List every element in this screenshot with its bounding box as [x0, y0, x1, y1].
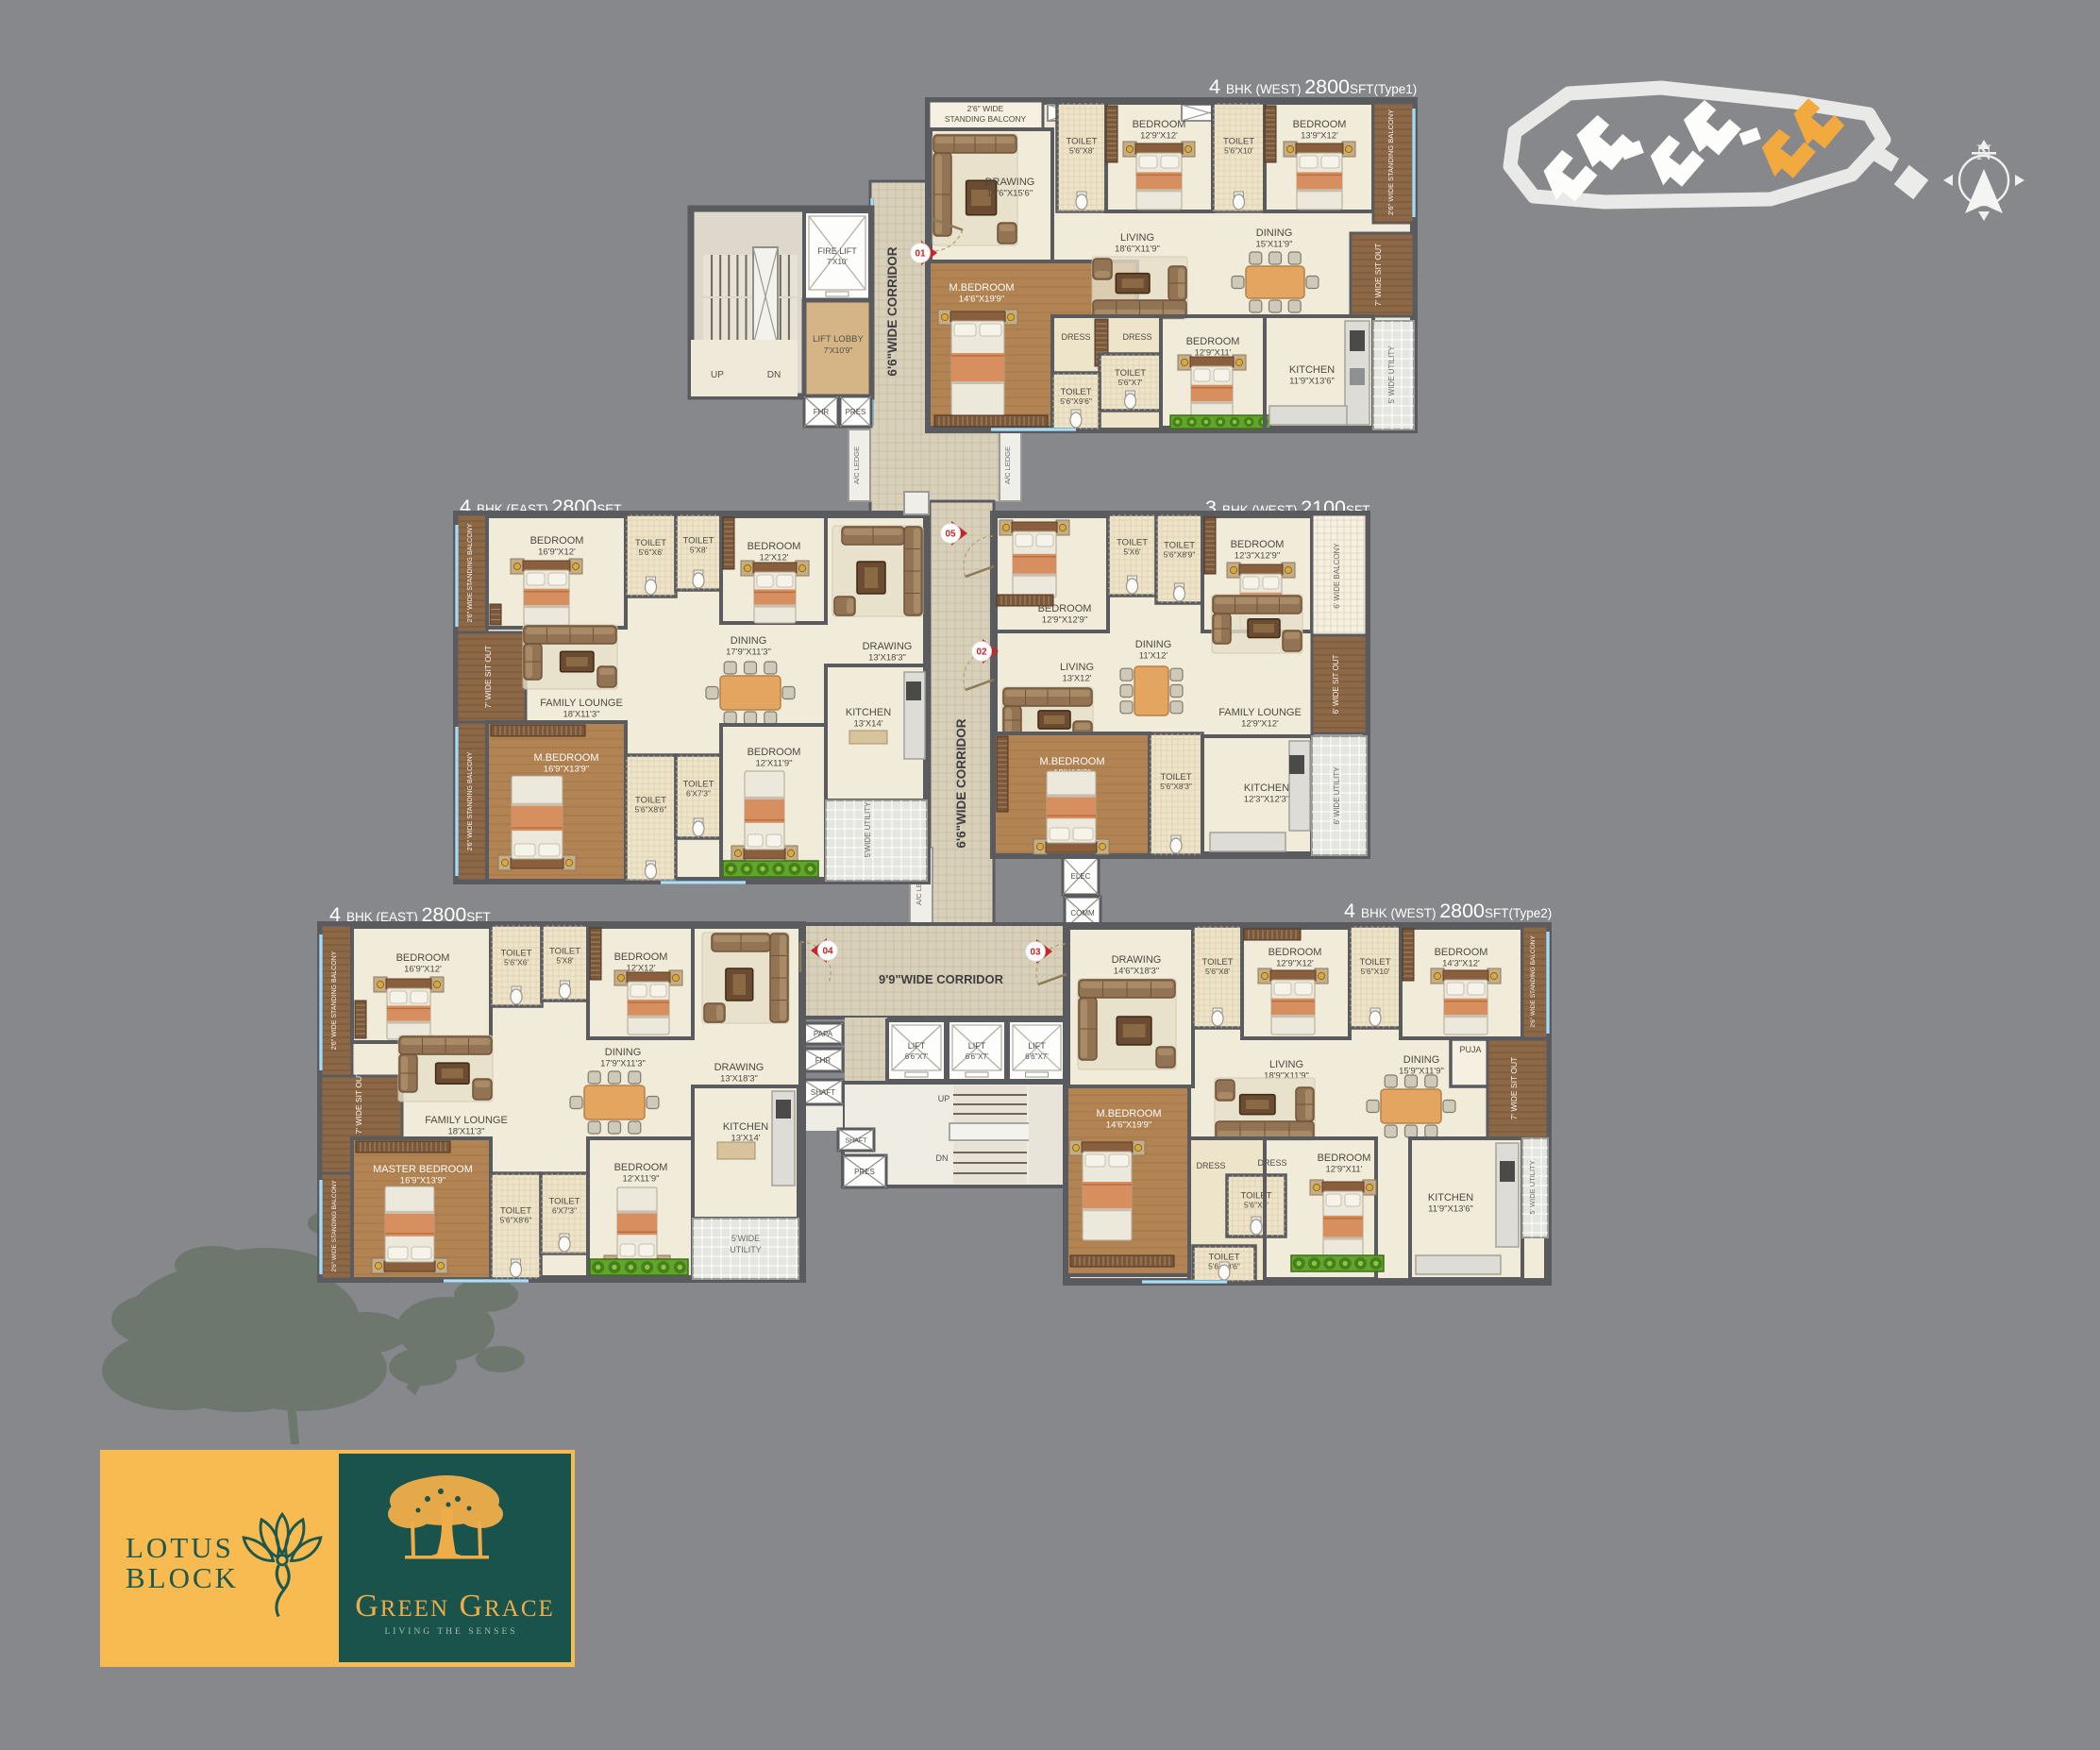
- svg-text:12'9"X12': 12'9"X12': [1276, 959, 1314, 969]
- svg-text:5' WIDE UTILITY: 5' WIDE UTILITY: [1528, 1160, 1537, 1214]
- svg-text:M.BEDROOM: M.BEDROOM: [949, 282, 1014, 294]
- svg-text:7' WIDE SIT OUT: 7' WIDE SIT OUT: [1373, 244, 1383, 307]
- svg-text:6'6"X7': 6'6"X7': [1025, 1052, 1049, 1061]
- svg-text:12'X11'9": 12'X11'9": [755, 759, 792, 769]
- svg-text:11'9"X13'6": 11'9"X13'6": [1428, 1204, 1473, 1215]
- svg-text:14'6"X15'6": 14'6"X15'6": [987, 189, 1033, 199]
- svg-text:18'X11'3": 18'X11'3": [447, 1127, 484, 1137]
- svg-text:STANDING BALCONY: STANDING BALCONY: [945, 114, 1027, 124]
- svg-text:UP: UP: [711, 370, 724, 380]
- svg-text:BEDROOM: BEDROOM: [530, 535, 584, 547]
- svg-text:KITCHEN: KITCHEN: [1244, 782, 1289, 794]
- svg-text:LIVING: LIVING: [1060, 662, 1094, 673]
- svg-text:18'X11'3": 18'X11'3": [563, 710, 599, 720]
- svg-text:13'X12': 13'X12': [1062, 674, 1091, 684]
- svg-text:6'6"X7': 6'6"X7': [905, 1052, 929, 1061]
- svg-text:BEDROOM: BEDROOM: [1268, 947, 1322, 958]
- svg-text:6'6"X7': 6'6"X7': [966, 1052, 989, 1061]
- svg-text:5'6"X10': 5'6"X10': [1224, 146, 1253, 156]
- svg-text:PRES: PRES: [854, 1168, 875, 1176]
- svg-text:2'6" WIDE STANDING BALCONY: 2'6" WIDE STANDING BALCONY: [467, 751, 474, 850]
- svg-text:COMM: COMM: [1070, 909, 1095, 917]
- svg-text:7'X10'9": 7'X10'9": [824, 345, 853, 355]
- svg-text:5'6"X8'6": 5'6"X8'6": [635, 805, 667, 815]
- svg-text:DINING: DINING: [1135, 639, 1172, 650]
- svg-text:17'9"X11'3": 17'9"X11'3": [726, 648, 771, 658]
- svg-text:LIVING THE SENSES: LIVING THE SENSES: [384, 1627, 517, 1637]
- svg-text:5'6"X6': 5'6"X6': [504, 958, 529, 968]
- svg-text:2'6" WIDE: 2'6" WIDE: [967, 104, 1004, 113]
- svg-text:7' WIDE SIT OUT: 7' WIDE SIT OUT: [1509, 1057, 1519, 1120]
- svg-text:12'X11'9": 12'X11'9": [622, 1174, 659, 1185]
- svg-text:DRAWING: DRAWING: [985, 177, 1035, 188]
- svg-text:5'6"X8'3": 5'6"X8'3": [1160, 782, 1192, 791]
- svg-text:6' WIDE SIT OUT: 6' WIDE SIT OUT: [1332, 655, 1340, 715]
- svg-text:17'9"X11'3": 17'9"X11'3": [600, 1059, 646, 1069]
- svg-text:13'9"X12': 13'9"X12': [1301, 131, 1338, 142]
- svg-text:BEDROOM: BEDROOM: [1293, 119, 1347, 130]
- svg-text:LIFT LOBBY: LIFT LOBBY: [813, 334, 864, 345]
- svg-text:6'X7'3": 6'X7'3": [552, 1205, 577, 1215]
- svg-text:MASTER BEDROOM: MASTER BEDROOM: [373, 1164, 473, 1175]
- svg-text:01: 01: [915, 249, 926, 260]
- svg-text:6' WIDE UTILITY: 6' WIDE UTILITY: [1333, 766, 1341, 825]
- svg-text:DRESS: DRESS: [1257, 1158, 1286, 1168]
- svg-text:FHR: FHR: [815, 1056, 832, 1065]
- svg-text:UTILITY: UTILITY: [730, 1245, 762, 1254]
- svg-text:11'X12': 11'X12': [1139, 651, 1168, 662]
- svg-text:KITCHEN: KITCHEN: [723, 1121, 768, 1133]
- svg-text:BEDROOM: BEDROOM: [1231, 539, 1285, 550]
- svg-text:PAPA: PAPA: [814, 1030, 833, 1038]
- svg-text:2'6" WIDE STANDING BALCONY: 2'6" WIDE STANDING BALCONY: [331, 951, 338, 1050]
- svg-text:5'WIDE: 5'WIDE: [731, 1234, 760, 1243]
- svg-text:KITCHEN: KITCHEN: [1289, 364, 1335, 376]
- svg-text:14'6"X19'9": 14'6"X19'9": [959, 294, 1004, 305]
- svg-text:16'9"X13'9": 16'9"X13'9": [400, 1176, 445, 1186]
- svg-text:PRES: PRES: [846, 408, 866, 416]
- svg-text:N: N: [1976, 141, 1992, 164]
- svg-text:DINING: DINING: [1403, 1054, 1440, 1066]
- svg-text:A/C LEDGE: A/C LEDGE: [1003, 446, 1012, 484]
- svg-text:LOTUS: LOTUS: [126, 1531, 234, 1564]
- svg-text:05: 05: [945, 530, 956, 540]
- svg-text:2'6" WIDE STANDING BALCONY: 2'6" WIDE STANDING BALCONY: [331, 1180, 338, 1272]
- svg-text:LIFT: LIFT: [1028, 1041, 1046, 1051]
- svg-text:LIVING: LIVING: [1269, 1059, 1303, 1070]
- svg-text:FAMILY LOUNGE: FAMILY LOUNGE: [540, 698, 623, 709]
- svg-text:9'9"WIDE CORRIDOR: 9'9"WIDE CORRIDOR: [879, 972, 1004, 986]
- svg-text:7' WIDE SIT OUT: 7' WIDE SIT OUT: [354, 1071, 363, 1135]
- svg-text:BEDROOM: BEDROOM: [1186, 336, 1240, 347]
- svg-text:13'X18'3": 13'X18'3": [868, 653, 906, 664]
- svg-text:2'6" WIDE STANDING BALCONY: 2'6" WIDE STANDING BALCONY: [1386, 109, 1395, 215]
- svg-text:7'X10': 7'X10': [827, 258, 848, 266]
- svg-text:2'6" WIDE STANDING BALCONY: 2'6" WIDE STANDING BALCONY: [1530, 935, 1537, 1028]
- svg-text:DRESS: DRESS: [1196, 1161, 1225, 1170]
- svg-text:KITCHEN: KITCHEN: [846, 707, 891, 718]
- svg-text:5'6"X8'6": 5'6"X8'6": [500, 1216, 532, 1225]
- svg-text:5'6"X10': 5'6"X10': [1361, 967, 1390, 976]
- svg-text:2'6" WIDE STANDING BALCONY: 2'6" WIDE STANDING BALCONY: [467, 523, 474, 622]
- svg-text:BEDROOM: BEDROOM: [1133, 119, 1186, 130]
- svg-text:6'6"WIDE CORRIDOR: 6'6"WIDE CORRIDOR: [885, 246, 899, 376]
- svg-text:FIRE LIFT: FIRE LIFT: [817, 246, 857, 256]
- svg-text:BEDROOM: BEDROOM: [748, 541, 801, 552]
- svg-text:15'X11'9": 15'X11'9": [1255, 240, 1292, 250]
- svg-text:DRESS: DRESS: [1122, 332, 1151, 342]
- svg-text:14'6"X19'9": 14'6"X19'9": [1106, 1120, 1151, 1131]
- svg-text:PUJA: PUJA: [1459, 1045, 1481, 1054]
- svg-text:DN: DN: [767, 370, 781, 380]
- svg-text:5'X6': 5'X6': [1123, 547, 1141, 557]
- svg-text:13'X18'3": 13'X18'3": [720, 1074, 758, 1085]
- svg-text:5'WIDE UTILITY: 5'WIDE UTILITY: [864, 801, 872, 858]
- svg-text:7' WIDE SIT OUT: 7' WIDE SIT OUT: [483, 646, 493, 709]
- svg-text:M.BEDROOM: M.BEDROOM: [533, 752, 598, 764]
- svg-text:A/C LEDGE: A/C LEDGE: [852, 446, 861, 484]
- svg-text:5'6"X8'9": 5'6"X8'9": [1164, 550, 1196, 560]
- svg-text:LIFT: LIFT: [908, 1041, 926, 1051]
- svg-text:FAMILY LOUNGE: FAMILY LOUNGE: [425, 1115, 508, 1126]
- svg-text:DRAWING: DRAWING: [1112, 954, 1162, 966]
- svg-text:12'9"X11': 12'9"X11': [1325, 1165, 1362, 1175]
- svg-text:DINING: DINING: [605, 1047, 642, 1058]
- svg-text:18'6"X11'9": 18'6"X11'9": [1115, 244, 1160, 255]
- svg-text:FHR: FHR: [814, 408, 830, 416]
- svg-text:11'9"X13'6": 11'9"X13'6": [1289, 377, 1335, 387]
- svg-text:BEDROOM: BEDROOM: [1318, 1153, 1371, 1164]
- svg-text:BLOCK: BLOCK: [126, 1561, 239, 1594]
- svg-text:12'X12': 12'X12': [759, 553, 788, 564]
- svg-text:UP: UP: [938, 1094, 950, 1103]
- svg-text:SHAFT: SHAFT: [846, 1138, 868, 1145]
- svg-text:12'3"X12'9": 12'3"X12'9": [1235, 551, 1280, 562]
- svg-text:6'6"WIDE CORRIDOR: 6'6"WIDE CORRIDOR: [954, 718, 968, 848]
- svg-text:14'6"X18'3": 14'6"X18'3": [1114, 967, 1159, 977]
- svg-text:M.BEDROOM: M.BEDROOM: [1096, 1108, 1161, 1119]
- svg-text:12'9"X12'9": 12'9"X12'9": [1042, 615, 1087, 626]
- svg-text:16'9"X12': 16'9"X12': [404, 965, 442, 975]
- svg-text:5'6"X8': 5'6"X8': [1069, 146, 1094, 156]
- svg-text:6' WIDE BALCONY: 6' WIDE BALCONY: [1333, 543, 1341, 609]
- svg-text:BEDROOM: BEDROOM: [614, 1162, 668, 1173]
- svg-text:5' WIDE UTILITY: 5' WIDE UTILITY: [1387, 345, 1396, 404]
- svg-text:04: 04: [822, 947, 833, 957]
- svg-text:DRAWING: DRAWING: [714, 1062, 764, 1073]
- svg-text:BEDROOM: BEDROOM: [396, 952, 450, 964]
- svg-text:DINING: DINING: [731, 635, 767, 647]
- svg-text:5'6"X6': 5'6"X6': [638, 547, 663, 557]
- svg-text:12'9"X12': 12'9"X12': [1241, 719, 1279, 730]
- svg-text:M.BEDROOM: M.BEDROOM: [1039, 756, 1104, 767]
- svg-text:LIFT: LIFT: [968, 1041, 986, 1051]
- svg-text:6'X7'3": 6'X7'3": [686, 788, 711, 798]
- svg-text:LIVING: LIVING: [1120, 232, 1154, 244]
- svg-text:12'9"X12': 12'9"X12': [1140, 131, 1178, 142]
- svg-text:DRAWING: DRAWING: [863, 641, 913, 652]
- svg-text:KITCHEN: KITCHEN: [1428, 1192, 1473, 1203]
- svg-text:03: 03: [1030, 948, 1041, 958]
- svg-text:02: 02: [976, 648, 987, 658]
- svg-text:FAMILY LOUNGE: FAMILY LOUNGE: [1218, 707, 1302, 718]
- svg-text:DRESS: DRESS: [1061, 332, 1090, 342]
- svg-text:DN: DN: [936, 1153, 949, 1163]
- svg-text:15'9"X11'9": 15'9"X11'9": [1399, 1067, 1444, 1077]
- svg-text:BEDROOM: BEDROOM: [1435, 947, 1488, 958]
- svg-text:16'9"X12': 16'9"X12': [538, 547, 576, 558]
- svg-text:13'X14': 13'X14': [853, 719, 882, 730]
- svg-text:5'X8': 5'X8': [690, 545, 708, 554]
- svg-text:BEDROOM: BEDROOM: [614, 951, 668, 963]
- svg-text:DINING: DINING: [1256, 227, 1293, 239]
- svg-text:5'6"X8': 5'6"X8': [1205, 967, 1230, 976]
- svg-text:BEDROOM: BEDROOM: [748, 747, 801, 758]
- svg-text:SHAFT: SHAFT: [811, 1088, 835, 1097]
- svg-text:5'6"X9'6": 5'6"X9'6": [1060, 396, 1092, 406]
- svg-text:14'3"X12': 14'3"X12': [1442, 959, 1480, 969]
- svg-text:5'6"X7': 5'6"X7': [1117, 378, 1142, 387]
- svg-text:16'9"X13'9": 16'9"X13'9": [544, 765, 589, 775]
- svg-text:ELEC: ELEC: [1071, 872, 1091, 881]
- svg-text:5'X8': 5'X8': [556, 955, 574, 965]
- svg-text:12'3"X12'3": 12'3"X12'3": [1244, 795, 1289, 805]
